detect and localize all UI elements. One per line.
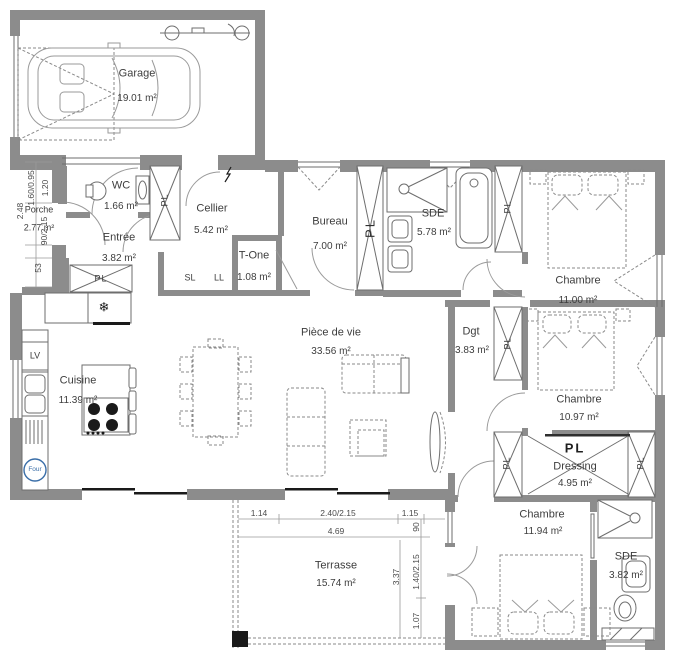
dim-terrace-e: 1.07 [412, 613, 421, 630]
room-area-garage: 19.01 m² [117, 94, 156, 104]
closet-label-sde: PL [504, 200, 513, 213]
dim-terrace-total: 4.69 [328, 527, 345, 536]
room-label-sde2: SDE [615, 552, 638, 563]
wall-unit [401, 358, 409, 393]
room-area-chambre3: 11.94 m² [524, 527, 563, 537]
coffee-table [350, 420, 386, 456]
room-label-chambre1: Chambre [555, 276, 600, 287]
dim-porch-height: 2.48 [16, 203, 25, 220]
room-label-terrasse: Terrasse [315, 561, 357, 572]
oven-label: Four [28, 467, 41, 474]
dim-porch-width: 1.20 [41, 180, 50, 197]
dim-terrace-h: 3.37 [392, 569, 401, 586]
closet-label-dressing-right: PL [637, 456, 646, 469]
dim-terrace-c: 1.15 [402, 509, 419, 518]
room-label-sde1: SDE [422, 209, 445, 220]
closet-label-bureau: PL [364, 218, 377, 238]
dim-porch-door: 90/2.15 [40, 217, 49, 245]
room-label-porche: Porche [25, 206, 54, 215]
bed-chambre2 [524, 309, 630, 390]
washer-label: LL [214, 274, 224, 283]
dim-porch-window: 1.60/0.95 [27, 170, 36, 205]
room-area-cellier: 5.42 m² [194, 226, 228, 236]
room-label-dgt: Dgt [462, 327, 479, 338]
dishwasher-label: LV [30, 352, 40, 361]
closet-label-entree: PL [94, 275, 107, 284]
room-area-bureau: 7.00 m² [313, 242, 347, 252]
room-area-sde1: 5.78 m² [417, 228, 451, 238]
bed-chambre3 [472, 555, 610, 639]
room-label-piece: Pièce de vie [301, 328, 361, 339]
freezer-icon: ❄ [99, 301, 110, 314]
kitchen [22, 293, 136, 490]
room-label-garage: Garage [119, 69, 156, 80]
room-area-piece: 33.56 m² [311, 347, 350, 357]
dim-terrace-window: 1.40/2.15 [412, 554, 421, 589]
room-label-entree: Entrée [103, 233, 135, 244]
dryer-label: SL [184, 274, 195, 283]
closet-label-wc: PL [161, 193, 170, 206]
room-area-wc: 1.66 m² [104, 202, 138, 212]
sinks-sde1 [388, 216, 412, 272]
dim-terrace-a: 1.14 [251, 509, 268, 518]
closet-label-dgt-1: PL [504, 336, 513, 349]
room-label-chambre2: Chambre [556, 395, 601, 406]
dim-terrace-b: 2.40/2.15 [320, 509, 355, 518]
room-label-dressing: Dressing [553, 462, 596, 473]
dim-porch-s: 53 [34, 263, 43, 272]
room-area-dgt: 3.83 m² [455, 346, 489, 356]
room-area-entree: 3.82 m² [102, 254, 136, 264]
floor-plan: Garage 19.01 m² Porche 2.77 m² WC 1.66 m… [0, 0, 674, 658]
room-label-tone: T-One [239, 251, 270, 262]
room-area-dressing: 4.95 m² [558, 479, 592, 489]
shower-sde1 [387, 168, 447, 212]
room-label-cuisine: Cuisine [60, 376, 97, 387]
room-label-bureau: Bureau [312, 217, 347, 228]
room-area-chambre2: 10.97 m² [559, 413, 598, 423]
garage-content [18, 24, 250, 140]
bathtub [456, 168, 492, 248]
room-area-terrasse: 15.74 m² [316, 579, 355, 589]
dining-table [180, 339, 251, 445]
room-label-wc: WC [112, 181, 130, 192]
room-area-tone: 1.08 m² [237, 273, 271, 283]
room-area-cuisine: 11.39 m² [59, 396, 98, 406]
sofa-large [342, 355, 406, 393]
room-label-cellier: Cellier [196, 204, 227, 215]
room-area-chambre1: 11.00 m² [559, 296, 598, 306]
dim-terrace-90: 90 [412, 522, 421, 531]
room-area-sde2: 3.82 m² [609, 571, 643, 581]
sofa-small [287, 388, 325, 476]
shower-sde2 [598, 500, 652, 538]
toilet-sde2 [614, 595, 636, 621]
room-label-chambre3: Chambre [519, 510, 564, 521]
bed-chambre1 [530, 170, 644, 268]
closet-label-dressing: PL [565, 442, 586, 455]
bicycle [160, 24, 250, 40]
closet-label-dgt-2: PL [503, 456, 512, 469]
